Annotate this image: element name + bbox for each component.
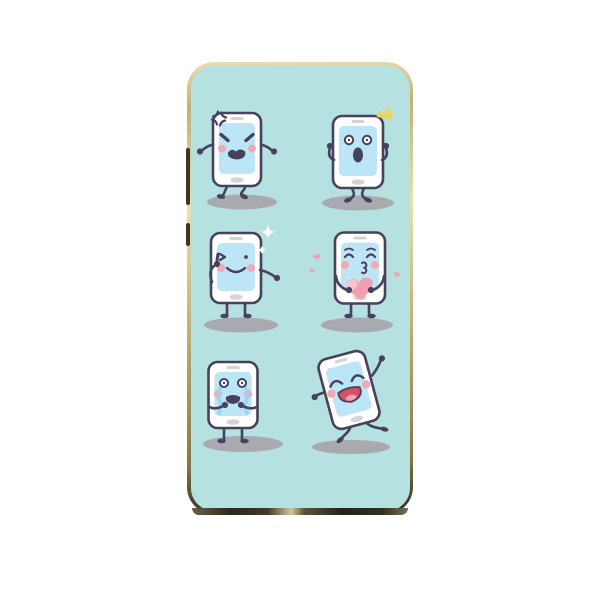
volume-button (186, 148, 190, 205)
speaker-slot (226, 366, 239, 369)
speaker-slot (229, 237, 242, 240)
home-button (229, 294, 242, 300)
character-angry-phone (196, 111, 276, 200)
laugh-phone-shadow (312, 440, 390, 454)
kiss-phone-shadow (321, 317, 393, 332)
character-cry-phone (208, 362, 257, 443)
speaker-slot (230, 117, 243, 120)
home-button (226, 419, 239, 425)
character-wink-phone (210, 225, 280, 318)
home-button (230, 177, 243, 183)
phone-case (187, 62, 413, 514)
crown-sparkle-icon (376, 104, 394, 120)
wink-phone-shadow (204, 317, 278, 332)
speaker-slot (353, 236, 366, 239)
home-button (351, 179, 364, 185)
character-kiss-phone (309, 232, 400, 318)
case-artwork (191, 66, 410, 511)
scene (0, 0, 600, 600)
character-surprised-phone (326, 104, 394, 204)
speaker-slot (351, 120, 364, 123)
power-button (186, 223, 190, 246)
case-bottom-rim (192, 508, 408, 515)
case-inner (191, 66, 410, 511)
character-laugh-phone (302, 344, 403, 449)
surprised-phone-shadow (322, 195, 394, 210)
